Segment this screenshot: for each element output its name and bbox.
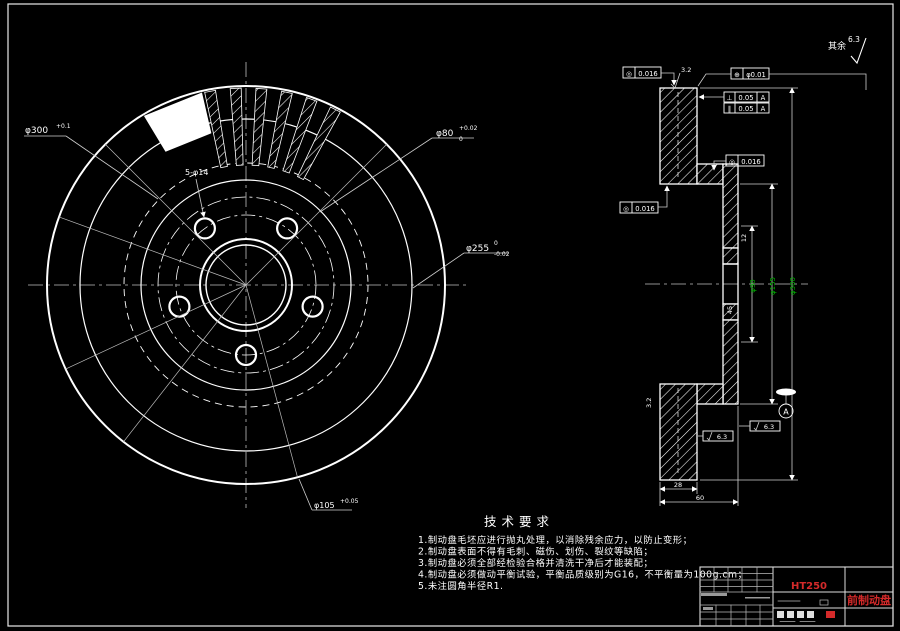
part-name-label: 前制动盘 — [847, 593, 891, 607]
svg-text:∥: ∥ — [728, 105, 731, 113]
vent-slot — [252, 88, 267, 165]
bolt-hole — [277, 218, 297, 238]
friction-ring-bottom — [660, 384, 697, 480]
surface-finish-note: 其余 6.3 — [828, 35, 866, 63]
frame-perpendicularity: ⊥ 0.05 A — [699, 92, 769, 102]
bolt-hole — [169, 297, 189, 317]
svg-text:0.05: 0.05 — [738, 105, 753, 113]
dim-bolt-holes: 5-φ14 — [185, 168, 208, 177]
dim-outer-tol: +0.1 — [56, 123, 71, 130]
tech-requirements: 技术要求 1.制动盘毛坯应进行抛丸处理，以消除残余应力，以防止变形； 2.制动盘… — [418, 514, 747, 592]
svg-text:⊕: ⊕ — [734, 71, 740, 79]
dim-flange: 45 — [726, 306, 734, 314]
tolerance-frames: ◎ 0.016 ⊕ φ0.01 ⊥ 0.05 A — [620, 67, 866, 213]
surface-note-value: 6.3 — [848, 35, 860, 44]
frame-parallelism: ∥ 0.05 A — [724, 103, 769, 113]
dim-hub-tol-lower: 0 — [459, 136, 463, 143]
radial-line — [59, 217, 246, 285]
svg-text:0.05: 0.05 — [738, 94, 753, 102]
tech-req-item-5: 5.未注圆角半径R1. — [418, 580, 503, 592]
section-view: φ90 φ155 φ300 12 45 28 60 ◎ 0.016 ⊕ φ0.0… — [620, 66, 866, 506]
surface-note-label: 其余 — [828, 40, 846, 52]
dim-disc-thickness: 28 — [674, 481, 682, 489]
dim-outer-diameter: φ300 — [25, 126, 48, 136]
hat-wall-bottom — [723, 320, 738, 404]
roughness-box-2: 6.3 — [739, 421, 780, 431]
vent-slot — [230, 88, 243, 165]
tech-req-title: 技术要求 — [484, 514, 554, 529]
tech-req-item-1: 1.制动盘毛坯应进行抛丸处理，以消除残余应力，以防止变形； — [418, 534, 692, 546]
svg-text:0.016: 0.016 — [741, 158, 760, 166]
svg-text:φ0.01: φ0.01 — [746, 71, 766, 79]
svg-text:0.016: 0.016 — [638, 70, 657, 78]
svg-text:A: A — [761, 105, 766, 113]
front-view: φ300 +0.1 5-φ14 φ80 +0.02 0 φ255 0 -0.02… — [24, 62, 510, 510]
tech-req-item-3: 3.制动盘必须全部经检验合格并清洗干净后才能装配； — [418, 557, 653, 569]
dim-friction-tol-lower: -0.02 — [494, 251, 510, 258]
dim-friction-diameter: φ255 — [466, 244, 489, 254]
svg-text:A: A — [761, 94, 766, 102]
radial-line — [124, 285, 247, 442]
front-leaders — [24, 136, 508, 510]
datum-a: A — [776, 389, 796, 419]
dim-hub-tol-upper: +0.02 — [459, 125, 478, 132]
dim-bolt-circle-tol: +0.05 — [340, 498, 359, 505]
roughness-box-1: 6.3 — [698, 431, 733, 441]
frame-runout-1: ◎ 0.016 — [623, 67, 674, 85]
dim-section-outer: φ300 — [789, 277, 797, 295]
material-label: HT250 — [791, 581, 827, 592]
dim-friction-tol-upper: 0 — [494, 240, 498, 247]
dim-section-hat: φ155 — [769, 277, 777, 295]
roughness-left-value: 3.2 — [645, 398, 653, 408]
bolt-hole — [303, 297, 323, 317]
dim-total-width: 60 — [696, 494, 704, 502]
dim-section-bore: φ90 — [749, 279, 757, 293]
tech-req-item-4: 4.制动盘必须做动平衡试验，平衡品质级别为G16，不平衡量为100g.cm； — [418, 569, 747, 581]
web-top — [697, 164, 723, 184]
svg-text:◎: ◎ — [626, 70, 632, 78]
web-bottom — [697, 384, 723, 404]
frame-position: ⊕ φ0.01 — [698, 68, 866, 90]
svg-text:0.016: 0.016 — [635, 205, 654, 213]
hat-wall-top — [723, 164, 738, 248]
svg-text:◎: ◎ — [729, 158, 735, 166]
svg-text:◎: ◎ — [623, 205, 629, 213]
radial-line — [246, 144, 387, 285]
radial-line — [246, 285, 298, 477]
svg-text:6.3: 6.3 — [764, 423, 774, 431]
svg-text:6.3: 6.3 — [717, 433, 727, 441]
vent-vane-solid — [145, 93, 211, 151]
drawing-canvas: φ300 +0.1 5-φ14 φ80 +0.02 0 φ255 0 -0.02… — [0, 0, 900, 631]
dim-hub-diameter: φ80 — [436, 129, 454, 139]
flange-top — [723, 248, 738, 264]
roughness-top-value: 3.2 — [681, 66, 691, 74]
projection-symbol-cells — [777, 611, 835, 622]
friction-ring-top — [660, 88, 697, 184]
dim-wall-thickness: 12 — [740, 234, 748, 242]
tech-req-item-2: 2.制动盘表面不得有毛刺、磁伤、划伤、裂纹等缺陷； — [418, 546, 653, 558]
frame-runout-2: ◎ 0.016 — [620, 186, 667, 213]
cad-drawing-sheet: φ300 +0.1 5-φ14 φ80 +0.02 0 φ255 0 -0.02… — [0, 0, 900, 631]
radial-line — [66, 285, 246, 369]
datum-a-label: A — [783, 408, 789, 417]
dim-bolt-circle: φ105 — [314, 501, 335, 510]
svg-text:⊥: ⊥ — [727, 94, 733, 102]
roughness-check-top — [671, 73, 680, 88]
